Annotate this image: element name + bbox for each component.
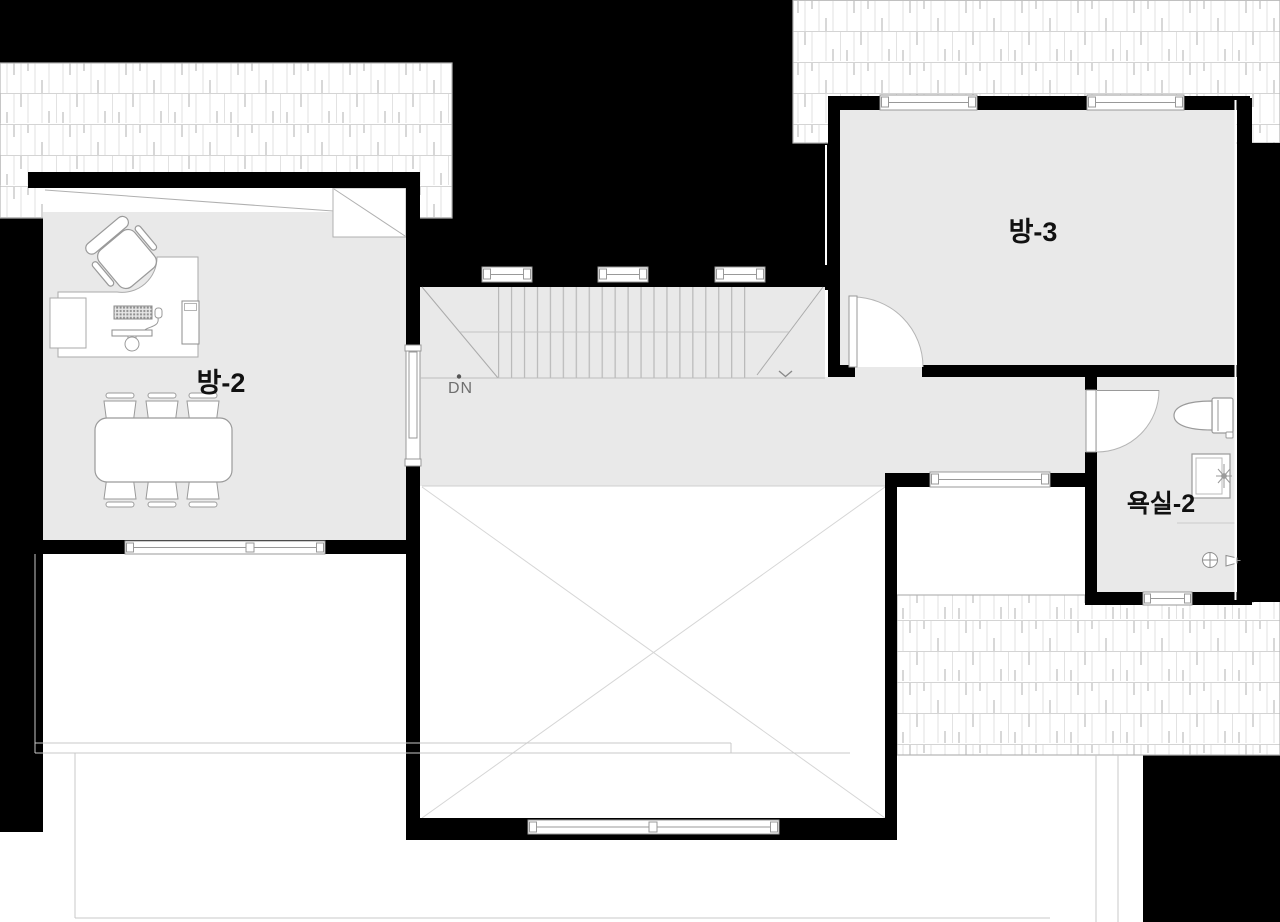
window xyxy=(880,95,977,110)
window xyxy=(482,267,532,282)
window xyxy=(1087,95,1184,110)
window-vertical xyxy=(405,345,421,466)
stairs-down-label: DN xyxy=(448,380,473,397)
roof-bottom-right xyxy=(897,595,1280,755)
window xyxy=(715,267,765,282)
window xyxy=(930,472,1050,487)
floor-plan-canvas: 방-2 방-3 욕실-2 DN xyxy=(0,0,1280,922)
side-cabinet xyxy=(50,298,86,348)
room-3-label: 방-3 xyxy=(1009,217,1058,247)
computer-mouse xyxy=(155,308,162,318)
monitor-base xyxy=(125,337,139,351)
window xyxy=(1143,592,1192,605)
hallway-floor xyxy=(420,377,885,486)
wall-poche-right xyxy=(1237,98,1280,605)
room-2-label: 방-2 xyxy=(197,368,246,398)
hallway-floor-east xyxy=(885,377,1085,473)
computer-keyboard xyxy=(114,306,152,319)
dining-table xyxy=(95,418,232,482)
computer-monitor xyxy=(112,330,152,336)
window xyxy=(125,541,325,554)
vanity-sink xyxy=(1192,454,1232,498)
bathroom-2-label: 욕실-2 xyxy=(1127,490,1195,518)
floor-drain-icon xyxy=(1203,553,1218,568)
floor-plan: 방-2 방-3 욕실-2 DN xyxy=(0,0,1280,922)
window xyxy=(528,820,779,834)
stair-start-dot xyxy=(457,374,461,378)
window xyxy=(598,267,648,282)
